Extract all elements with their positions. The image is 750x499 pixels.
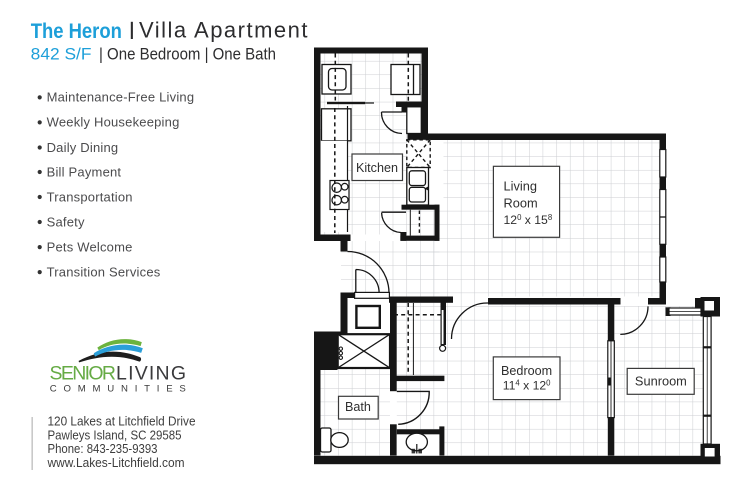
- svg-text:Kitchen: Kitchen: [356, 161, 398, 175]
- svg-text:SENIOR: SENIOR: [50, 363, 117, 385]
- svg-text:842 S/F: 842 S/F: [31, 45, 92, 63]
- svg-text:Sunroom: Sunroom: [635, 373, 687, 388]
- svg-text:Weekly Housekeeping: Weekly Housekeeping: [47, 115, 180, 130]
- svg-text:Transportation: Transportation: [47, 189, 133, 204]
- svg-text:114 x 120: 114 x 120: [503, 379, 551, 393]
- svg-text:Transition Services: Transition Services: [47, 264, 161, 279]
- svg-text:Safety: Safety: [47, 214, 85, 229]
- svg-text:LIVING: LIVING: [116, 363, 186, 385]
- svg-text:www.Lakes-Litchfield.com: www.Lakes-Litchfield.com: [47, 455, 185, 470]
- svg-text:Room: Room: [504, 195, 538, 210]
- svg-text:Bedroom: Bedroom: [501, 364, 552, 378]
- svg-text:Living: Living: [504, 179, 537, 194]
- svg-text:Daily Dining: Daily Dining: [47, 140, 119, 155]
- svg-text:Maintenance-Free Living: Maintenance-Free Living: [47, 90, 195, 105]
- svg-text:Villa Apartment: Villa Apartment: [139, 18, 308, 43]
- svg-text:Pets Welcome: Pets Welcome: [47, 239, 133, 254]
- svg-text:Bill Payment: Bill Payment: [47, 164, 122, 179]
- svg-text:Bath: Bath: [345, 400, 371, 414]
- svg-text:120 x 158: 120 x 158: [504, 213, 553, 227]
- svg-text:| One Bedroom | One Bath: | One Bedroom | One Bath: [99, 45, 276, 63]
- svg-text:The Heron: The Heron: [31, 19, 122, 43]
